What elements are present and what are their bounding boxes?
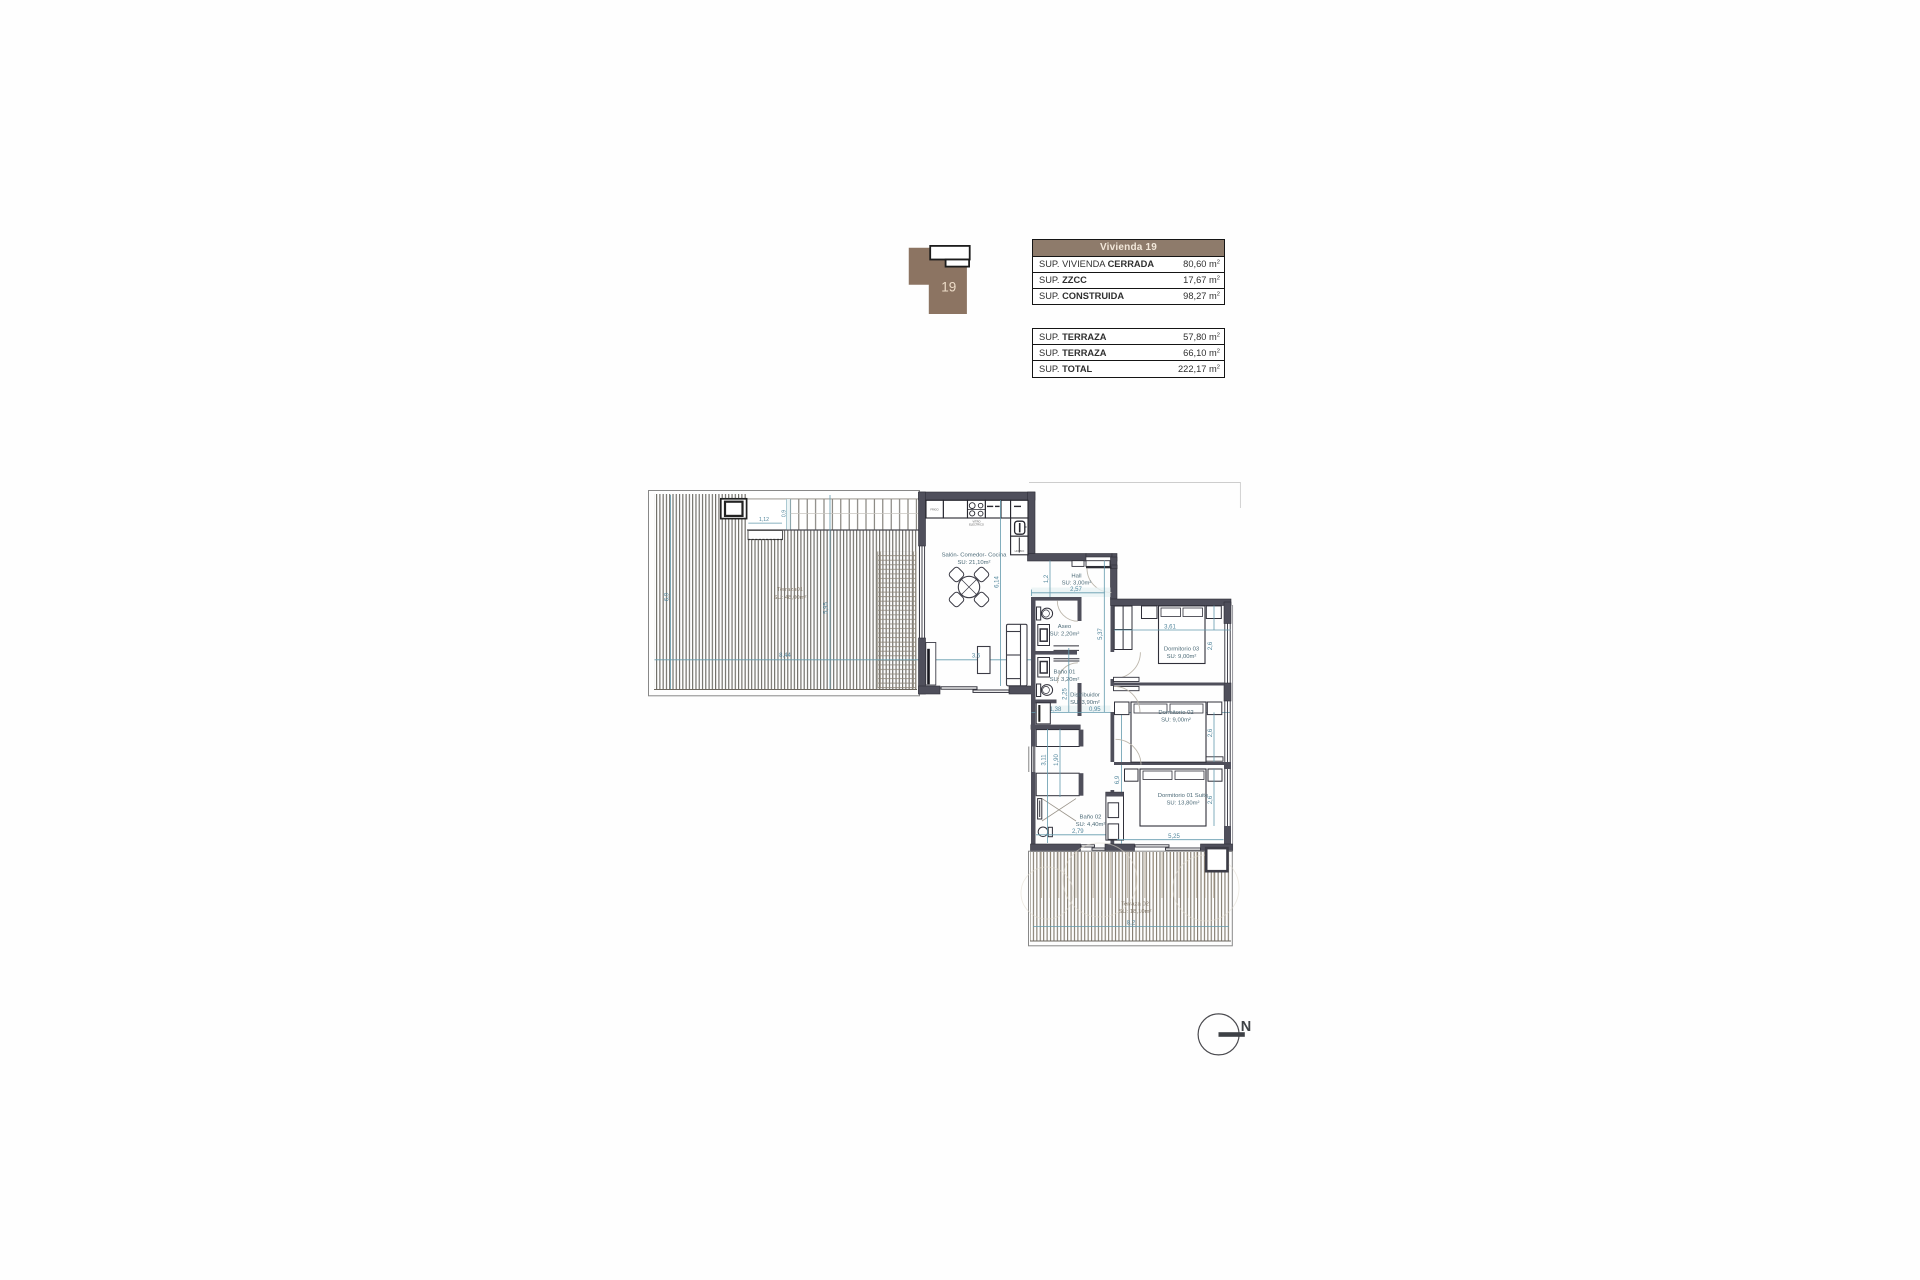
svg-text:SU: 3,20m²: SU: 3,20m² [1050,677,1080,683]
svg-text:ELECTRICO: ELECTRICO [969,523,984,527]
svg-text:Terraza01: Terraza01 [777,587,803,593]
svg-text:5,37: 5,37 [1098,628,1104,640]
svg-text:6,9: 6,9 [1115,775,1121,784]
svg-text:Baño 02: Baño 02 [1080,815,1102,821]
svg-text:6,9: 6,9 [664,592,670,601]
svg-text:Terraza 02: Terraza 02 [1121,902,1149,908]
svg-text:Baño 01: Baño 01 [1054,670,1076,676]
svg-text:2,79: 2,79 [1072,829,1084,835]
svg-text:Salón- Comedor- Cocina: Salón- Comedor- Cocina [942,553,1008,559]
svg-text:0,95: 0,95 [1089,707,1101,713]
svg-text:2,57: 2,57 [1070,587,1082,593]
svg-text:SU: 18,10m²: SU: 18,10m² [1118,909,1151,915]
svg-text:HORNO: HORNO [1015,549,1025,553]
svg-text:2,25: 2,25 [1063,688,1069,700]
svg-text:5,95: 5,95 [824,602,830,614]
svg-text:3,61: 3,61 [1164,624,1176,630]
svg-text:SU: 3,00m²: SU: 3,00m² [1062,581,1092,587]
svg-text:Dormitorio 01 Suite: Dormitorio 01 Suite [1158,793,1209,799]
svg-text:2,6: 2,6 [1208,641,1214,650]
svg-text:1,2: 1,2 [1044,574,1050,583]
svg-text:N: N [1241,1019,1251,1035]
svg-text:Dormitorio 02: Dormitorio 02 [1158,710,1193,716]
svg-text:FRIGO: FRIGO [930,508,938,512]
svg-text:Hall: Hall [1071,574,1081,580]
svg-text:SU: 48,00m²: SU: 48,00m² [773,595,806,601]
svg-text:2,6: 2,6 [1208,795,1214,804]
svg-text:SU: 9,00m²: SU: 9,00m² [1161,718,1191,724]
svg-text:Aseo: Aseo [1058,624,1072,630]
svg-text:Distribuidor: Distribuidor [1070,693,1100,699]
svg-text:SU: 2,20m²: SU: 2,20m² [1050,632,1080,638]
svg-text:0,9: 0,9 [781,510,787,517]
svg-text:3,11: 3,11 [1041,754,1047,766]
svg-text:3,5: 3,5 [972,654,981,660]
svg-text:Dormitorio 03: Dormitorio 03 [1164,647,1200,653]
svg-text:1,90: 1,90 [1054,754,1060,766]
svg-text:SU: 9,00m²: SU: 9,00m² [1167,654,1197,660]
svg-text:SU: 3,90m²: SU: 3,90m² [1070,700,1100,706]
svg-text:8,44: 8,44 [779,653,791,659]
svg-text:19: 19 [941,280,956,295]
svg-text:5,25: 5,25 [1168,834,1180,840]
svg-text:2,6: 2,6 [1208,728,1214,737]
svg-text:SU: 13,80m²: SU: 13,80m² [1166,801,1199,807]
svg-text:SU: 21,10m²: SU: 21,10m² [957,560,990,566]
svg-text:1,38: 1,38 [1050,707,1062,713]
svg-text:6,14: 6,14 [994,576,1000,588]
svg-text:SU: 4,40m²: SU: 4,40m² [1076,822,1106,828]
svg-text:8,2: 8,2 [1127,921,1136,927]
svg-text:1,12: 1,12 [759,517,769,523]
